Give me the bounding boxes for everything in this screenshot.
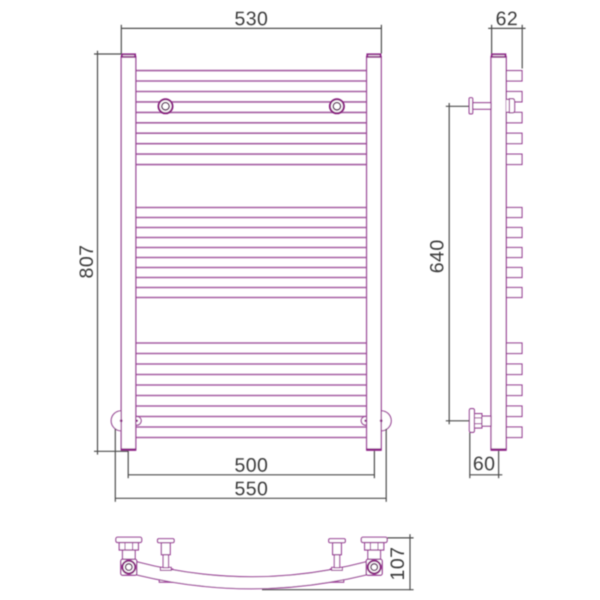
svg-text:60: 60	[473, 453, 496, 475]
svg-text:62: 62	[496, 8, 519, 30]
svg-text:500: 500	[234, 455, 268, 477]
svg-text:107: 107	[387, 547, 409, 581]
svg-text:640: 640	[427, 239, 449, 273]
svg-text:807: 807	[76, 245, 98, 279]
svg-text:550: 550	[234, 478, 268, 500]
svg-text:530: 530	[234, 8, 268, 30]
